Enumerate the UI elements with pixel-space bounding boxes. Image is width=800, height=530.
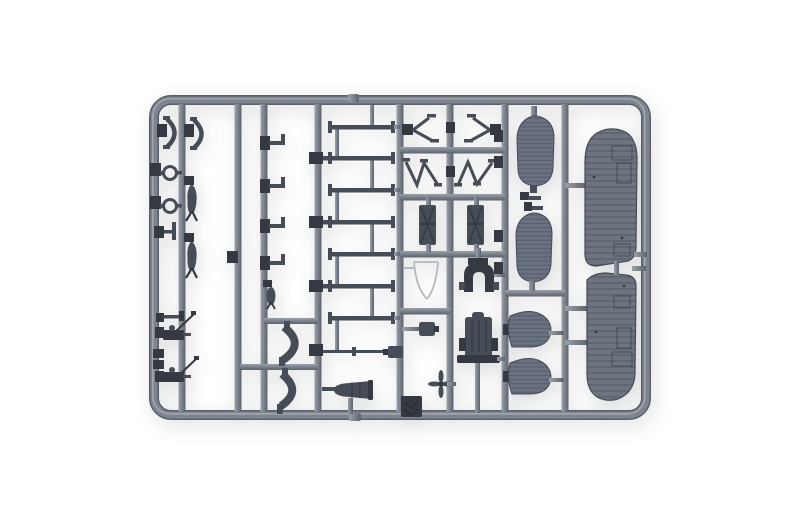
crossrail-3 <box>400 251 505 258</box>
gate-nub-top <box>348 94 359 102</box>
link-parts <box>520 192 543 211</box>
fin-part-2 <box>503 358 564 394</box>
frame-tab <box>227 251 238 263</box>
v-strut-part-1 <box>402 114 439 143</box>
product-photo-stage <box>0 0 800 530</box>
radiator-part-2 <box>467 197 484 252</box>
fitting-part-left <box>383 346 403 358</box>
sprue-photo <box>0 0 800 530</box>
n-strut-part-1 <box>402 158 442 187</box>
crossrail-1 <box>400 147 505 154</box>
skid-part-right <box>184 117 202 150</box>
bracket-part-1 <box>260 134 285 150</box>
strut-part-8 <box>323 347 386 356</box>
runner-8 <box>562 104 569 412</box>
strut-part-6 <box>323 280 395 292</box>
cowling-cone-part <box>322 380 373 414</box>
bracket-part-3 <box>260 217 285 233</box>
bracket-part-2 <box>260 177 285 193</box>
bomb-part-1 <box>184 176 197 221</box>
strut-ladder <box>309 105 400 356</box>
float-panel-part-2 <box>516 213 552 291</box>
bracket-part-4 <box>260 254 285 270</box>
engine-block-part <box>457 312 505 413</box>
strut-part-4 <box>323 216 395 228</box>
runner-1 <box>179 104 186 412</box>
gate-nub-bottom <box>349 413 361 421</box>
hatch-plate-part <box>401 396 422 417</box>
skid-part-left <box>157 116 175 149</box>
wing-half-lower <box>565 273 636 400</box>
gunsight-bar-part <box>156 311 184 322</box>
wing-half-upper <box>565 129 647 266</box>
crossrail-6 <box>264 318 318 324</box>
fitting-part-small <box>402 322 439 336</box>
windscreen-frame-part <box>403 262 438 299</box>
strut-part-2 <box>323 152 395 164</box>
cowl-arc-part-2 <box>277 368 292 414</box>
bomb-part-2 <box>184 233 197 278</box>
crossrail-4 <box>400 308 450 315</box>
cowl-arc-part-1 <box>279 321 295 366</box>
radiator-part-1 <box>419 197 436 252</box>
fin-part-1 <box>503 311 564 347</box>
crossrail-2 <box>400 194 505 201</box>
float-panel-part-1 <box>517 106 554 193</box>
